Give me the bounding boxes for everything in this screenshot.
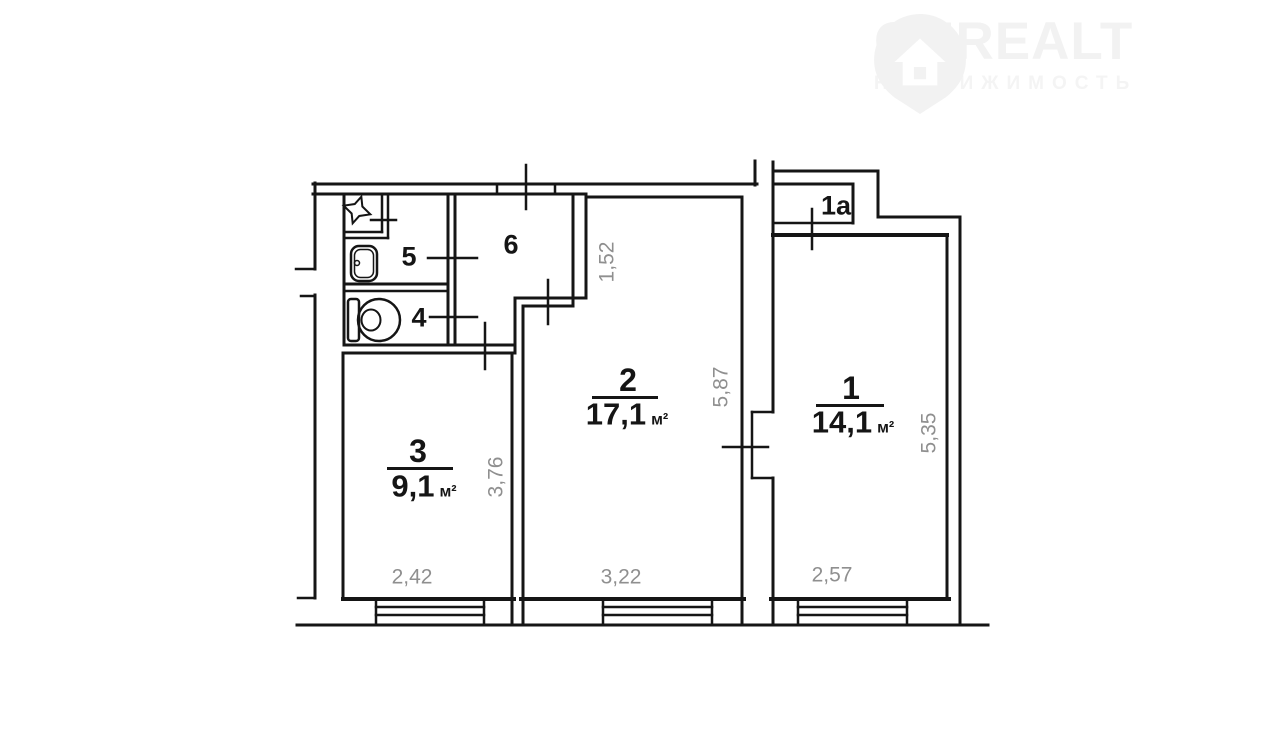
- room-1-area: 14,1м²: [812, 407, 895, 438]
- floor-plan-svg: [0, 0, 1280, 746]
- toilet-icon: [348, 299, 400, 341]
- room-2-number: 2: [619, 364, 637, 396]
- dimension-2-57: 2,57: [812, 565, 853, 586]
- sink-icon: [351, 246, 377, 281]
- room-1a-number: 1a: [821, 193, 851, 220]
- room-3-number: 3: [409, 435, 427, 467]
- dimension-5-87: 5,87: [711, 367, 732, 408]
- dimension-3-22: 3,22: [601, 567, 642, 588]
- dimension-5-35: 5,35: [919, 413, 940, 454]
- dimension-3-76: 3,76: [486, 457, 507, 498]
- room-3-area: 9,1м²: [391, 471, 456, 502]
- floor-plan-page: ONREALT НЕДВИЖИМОСТЬ: [0, 0, 1280, 746]
- dimension-2-42: 2,42: [392, 567, 433, 588]
- room-2-area: 17,1м²: [586, 399, 669, 430]
- room-6-number: 6: [503, 232, 518, 259]
- room-5-number: 5: [401, 244, 416, 271]
- room-1-number: 1: [842, 372, 860, 404]
- room-4-number: 4: [411, 305, 426, 332]
- dimension-1-52: 1,52: [597, 242, 618, 283]
